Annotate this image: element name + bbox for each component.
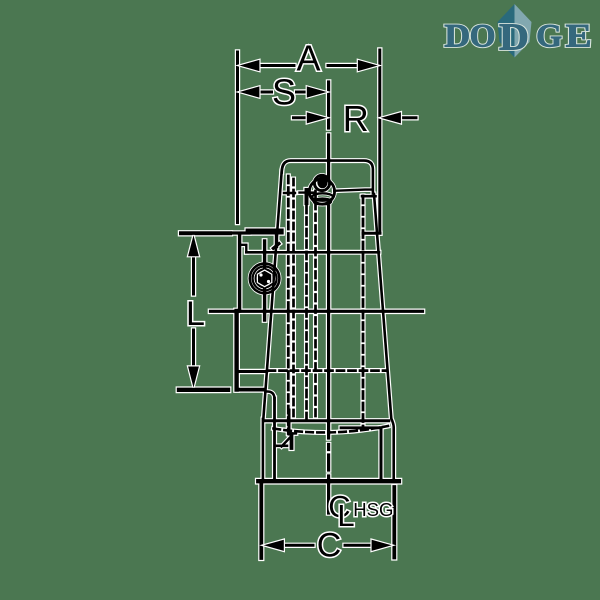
svg-text:L: L — [337, 498, 354, 533]
svg-text:S: S — [272, 72, 296, 113]
svg-text:E: E — [566, 19, 592, 55]
svg-text:G: G — [536, 19, 562, 55]
svg-text:R: R — [343, 98, 369, 139]
svg-text:D: D — [499, 16, 529, 58]
svg-text:L: L — [186, 295, 205, 333]
svg-text:O: O — [470, 19, 496, 55]
svg-text:HSG: HSG — [353, 499, 393, 520]
svg-text:D: D — [444, 19, 470, 55]
svg-text:A: A — [296, 38, 320, 79]
